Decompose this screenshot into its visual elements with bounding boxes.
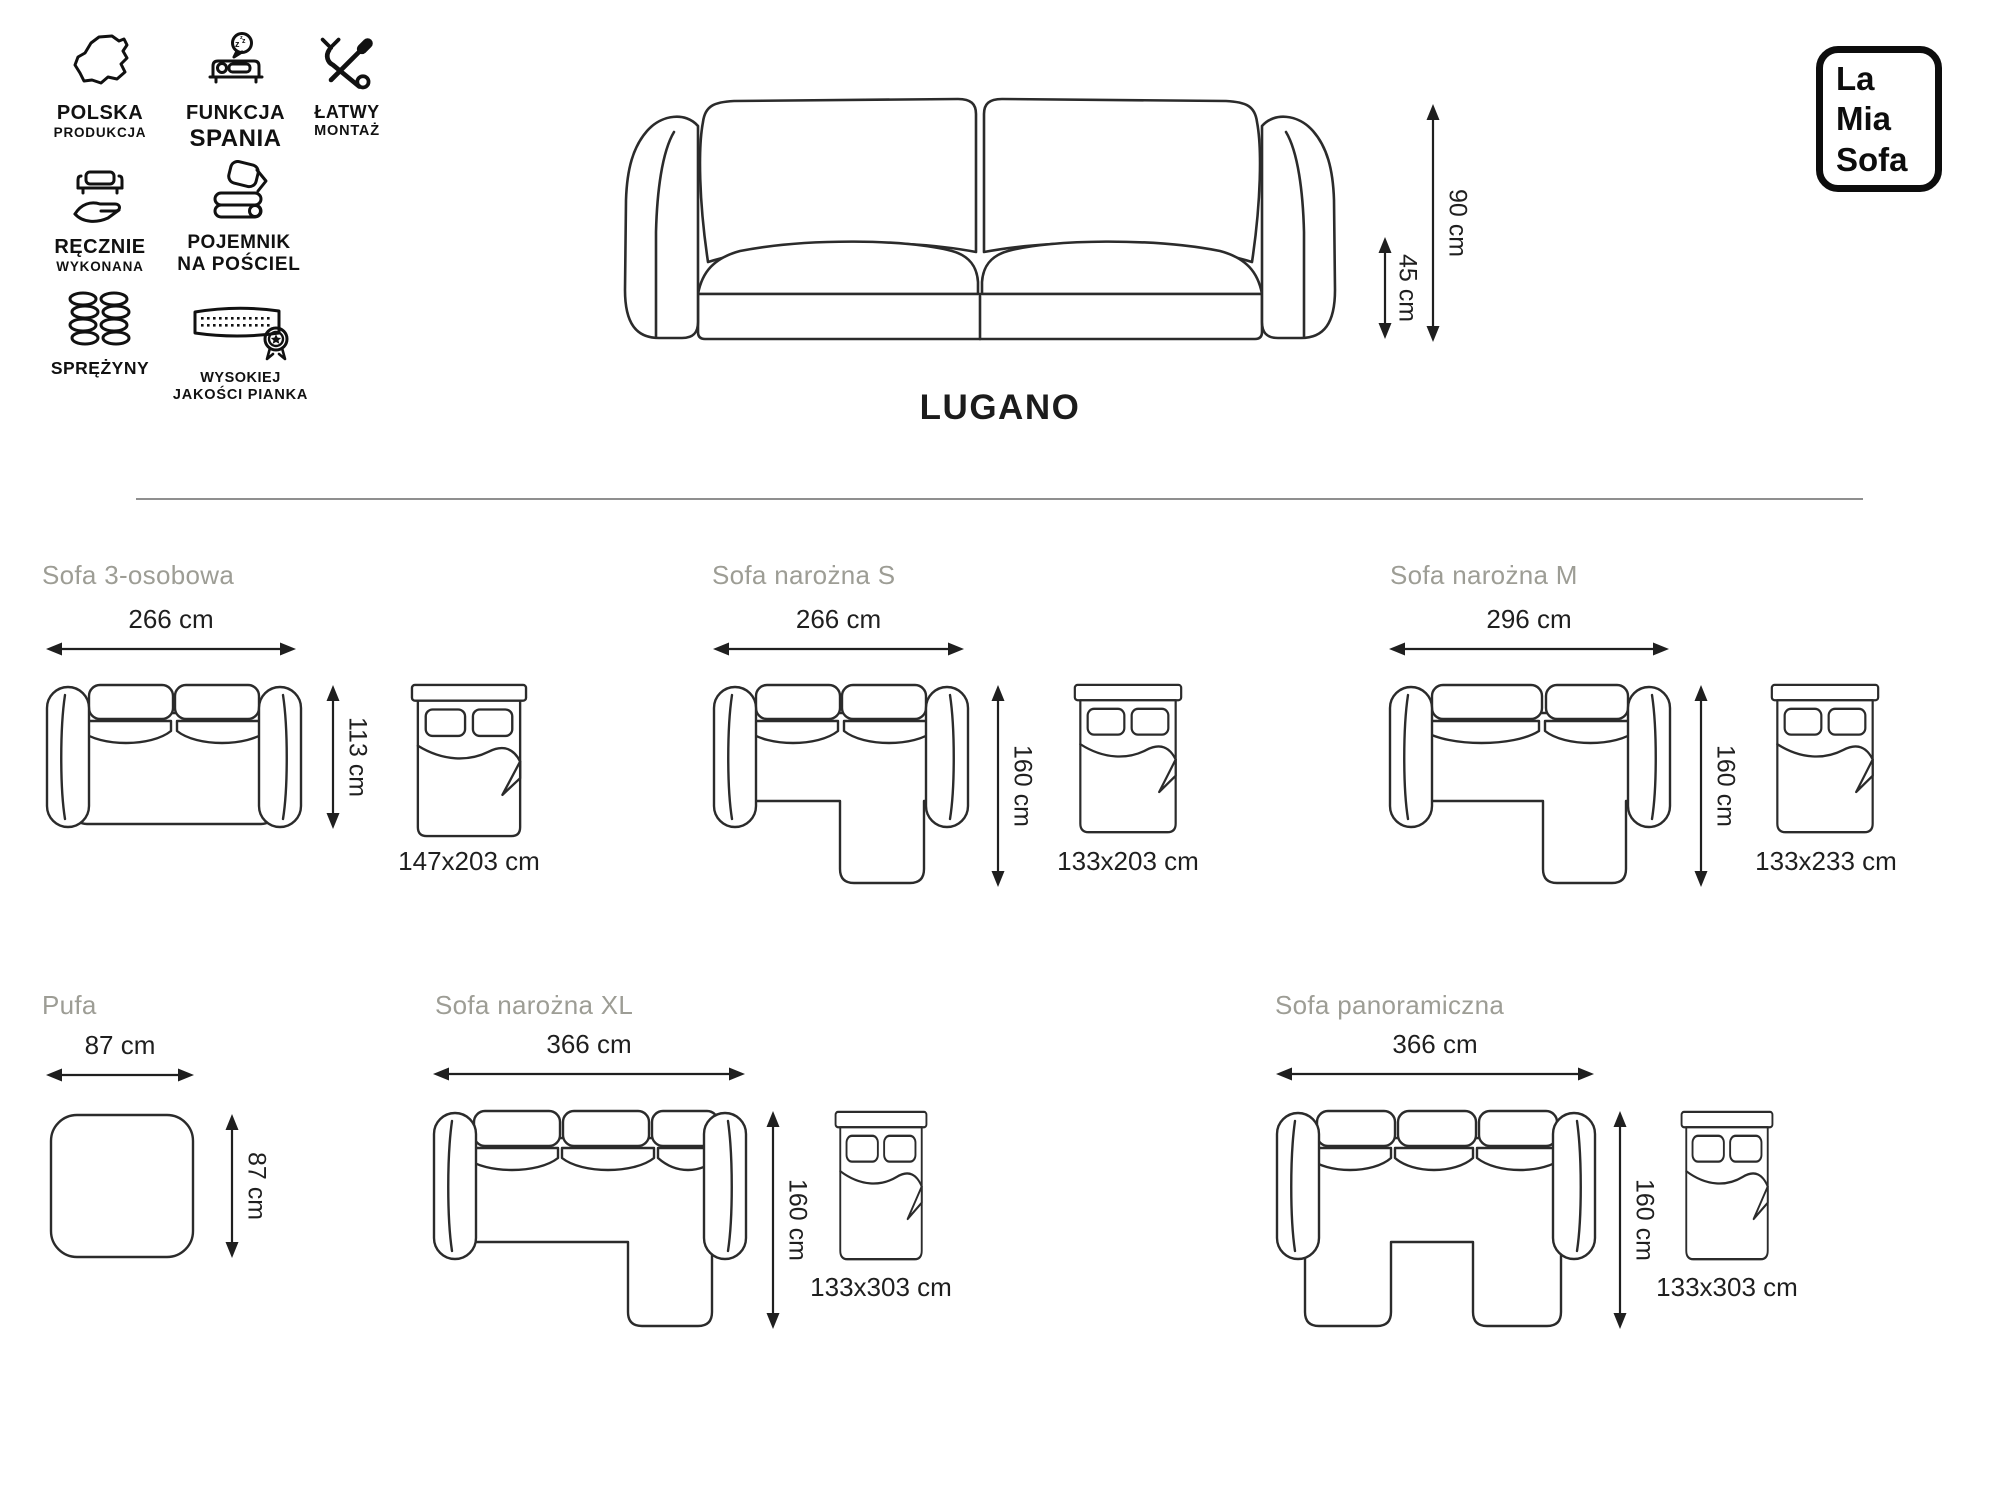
section-divider <box>136 498 1863 500</box>
seat-height-arrow <box>1377 236 1393 340</box>
bed-size-label: 133x233 cm <box>1750 846 1902 877</box>
depth-label: 160 cm <box>1007 684 1037 888</box>
product-spec-sheet: POLSKA PRODUKCJA z z z FUNKCJA SPANIA ŁA… <box>0 0 2000 1500</box>
badge-label: WYSOKIEJ <box>200 370 281 387</box>
badge-sublabel: WYKONANA <box>56 259 143 275</box>
handmade-icon <box>68 166 132 228</box>
width-label: 266 cm <box>712 604 965 635</box>
variant-title-sofa-narozna-xl: Sofa narożna XL <box>435 990 633 1021</box>
sofa-top-view-drawing <box>712 683 970 890</box>
width-label: 296 cm <box>1388 604 1670 635</box>
badge-sublabel: MONTAŻ <box>314 123 380 140</box>
depth-arrow <box>325 684 341 830</box>
badge-sublabel: PRODUKCJA <box>54 125 147 141</box>
variant-title-sofa-narozna-s: Sofa narożna S <box>712 560 895 591</box>
bed-size-label: 133x303 cm <box>806 1272 956 1303</box>
depth-label: 113 cm <box>342 684 372 830</box>
badge-sublabel: JAKOŚCI PIANKA <box>173 387 308 404</box>
badge-wysokiej-jakosci-pianka: WYSOKIEJ JAKOŚCI PIANKA <box>148 296 333 404</box>
width-label: 366 cm <box>1275 1029 1595 1060</box>
depth-arrow <box>224 1113 240 1259</box>
bed-icon <box>1770 683 1880 836</box>
bed-size-label: 147x203 cm <box>394 846 544 877</box>
depth-arrow <box>1612 1110 1628 1330</box>
poland-map-icon <box>68 30 132 94</box>
bed-size-label: 133x203 cm <box>1053 846 1203 877</box>
badge-label: ŁATWY <box>314 102 379 123</box>
springs-icon <box>68 290 132 350</box>
width-label: 87 cm <box>45 1030 195 1061</box>
width-arrow <box>45 641 297 657</box>
width-arrow <box>432 1066 746 1082</box>
badge-pojemnik-na-posciel: POJEMNIK NA POŚCIEL <box>164 160 314 277</box>
depth-label: 87 cm <box>241 1113 271 1259</box>
sofa-top-view-drawing <box>1275 1108 1597 1330</box>
product-title: LUGANO <box>850 388 1150 428</box>
bed-size-label: 133x303 cm <box>1652 1272 1802 1303</box>
variant-title-sofa-narozna-m: Sofa narożna M <box>1390 560 1578 591</box>
sofa-front-view-drawing <box>610 52 1350 344</box>
badge-latwy-montaz: ŁATWY MONTAŻ <box>288 34 406 140</box>
total-height-arrow <box>1425 103 1441 343</box>
width-label: 266 cm <box>45 604 297 635</box>
variant-title-sofa-3-osobowa: Sofa 3-osobowa <box>42 560 234 591</box>
bedding-storage-icon <box>207 160 271 224</box>
badge-funkcja-spania: z z z FUNKCJA SPANIA <box>168 30 303 154</box>
depth-arrow <box>990 684 1006 888</box>
pouf-top-view-drawing <box>48 1112 196 1260</box>
logo-line: Sofa <box>1836 140 1935 180</box>
seat-height-label: 45 cm <box>1392 236 1422 340</box>
depth-arrow <box>1693 684 1709 888</box>
badge-polska-produkcja: POLSKA PRODUKCJA <box>30 30 170 141</box>
la-mia-sofa-logo: La Mia Sofa <box>1816 46 1942 192</box>
total-height-label: 90 cm <box>1442 103 1472 343</box>
width-arrow <box>712 641 965 657</box>
tools-icon <box>317 34 377 94</box>
bed-icon <box>410 683 528 840</box>
width-label: 366 cm <box>432 1029 746 1060</box>
bed-icon <box>1680 1110 1774 1263</box>
sofa-top-view-drawing <box>432 1108 748 1330</box>
depth-label: 160 cm <box>1710 684 1740 888</box>
badge-label: SPRĘŻYNY <box>51 358 149 378</box>
badge-sublabel: SPANIA <box>190 125 282 154</box>
badge-sublabel: NA POŚCIEL <box>177 254 300 277</box>
width-arrow <box>45 1067 195 1083</box>
logo-line: La <box>1836 59 1935 99</box>
svg-text:z: z <box>240 35 243 41</box>
foam-icon <box>191 296 291 362</box>
width-arrow <box>1275 1066 1595 1082</box>
depth-arrow <box>765 1110 781 1330</box>
sofa-top-view-drawing <box>45 683 303 831</box>
badge-label: FUNKCJA <box>186 102 285 125</box>
width-arrow <box>1388 641 1670 657</box>
sleep-function-icon: z z z <box>204 30 268 94</box>
bed-icon <box>1073 683 1183 836</box>
badge-recznie-wykonana: RĘCZNIE WYKONANA <box>30 166 170 275</box>
variant-title-sofa-panoramiczna: Sofa panoramiczna <box>1275 990 1504 1021</box>
variant-title-pufa: Pufa <box>42 990 97 1021</box>
logo-line: Mia <box>1836 99 1935 139</box>
badge-label: RĘCZNIE <box>54 236 145 259</box>
badge-label: POLSKA <box>57 102 143 125</box>
badge-label: POJEMNIK <box>187 232 290 254</box>
sofa-top-view-drawing <box>1388 683 1672 890</box>
bed-icon <box>834 1110 928 1263</box>
